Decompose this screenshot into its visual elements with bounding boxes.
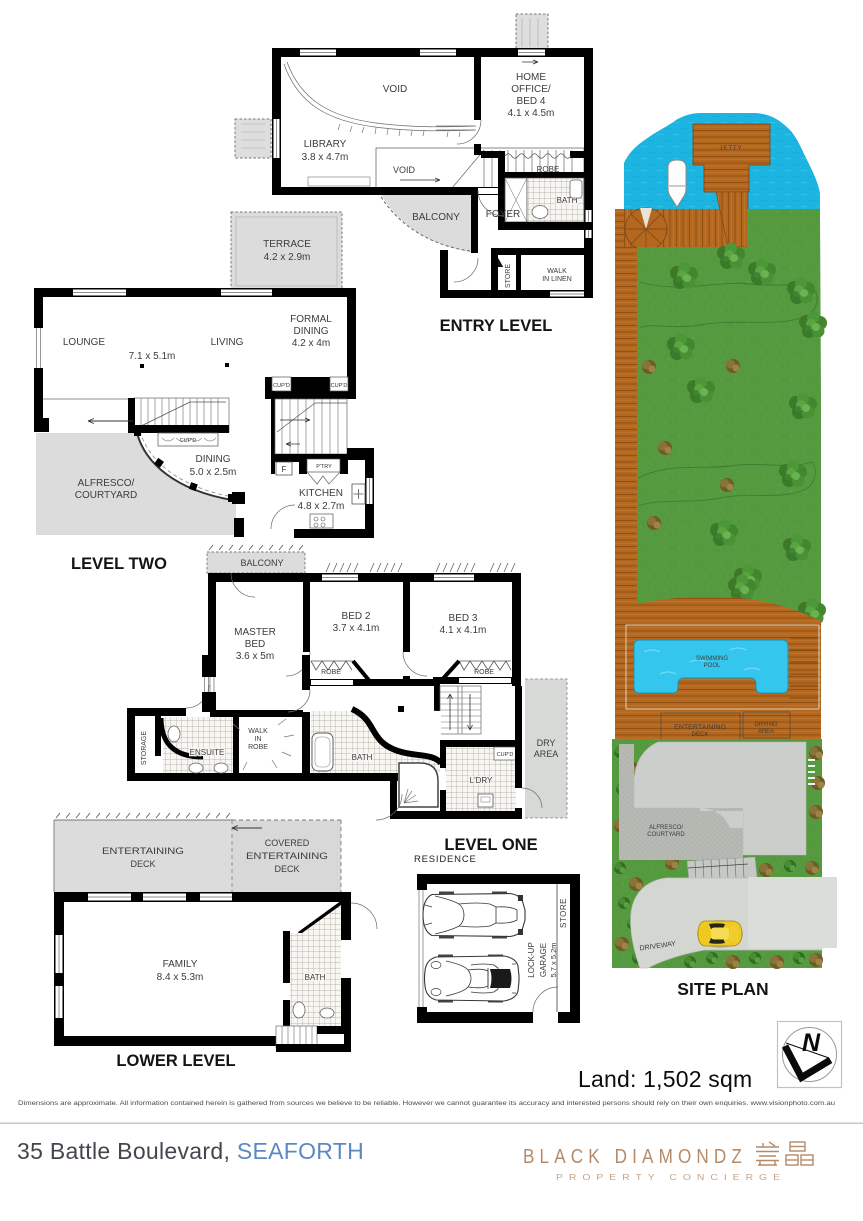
svg-text:FAMILY: FAMILY bbox=[163, 959, 198, 970]
svg-text:4.1 x 4.1m: 4.1 x 4.1m bbox=[440, 625, 487, 636]
svg-text:ENTERTAINING: ENTERTAINING bbox=[246, 851, 328, 861]
svg-text:JETTY: JETTY bbox=[719, 146, 742, 152]
svg-text:DINING: DINING bbox=[196, 454, 231, 465]
svg-text:P'TRY: P'TRY bbox=[316, 464, 332, 470]
svg-text:STORAGE: STORAGE bbox=[141, 731, 148, 765]
svg-text:CUP'D: CUP'D bbox=[273, 383, 290, 389]
svg-text:ENSUITE: ENSUITE bbox=[190, 748, 225, 757]
svg-text:LEVEL TWO: LEVEL TWO bbox=[71, 555, 167, 573]
svg-text:ROBE: ROBE bbox=[248, 744, 268, 751]
svg-text:FOYER: FOYER bbox=[486, 209, 520, 220]
svg-text:5.7 x 5.2m: 5.7 x 5.2m bbox=[549, 942, 558, 977]
svg-text:3.8 x 4.7m: 3.8 x 4.7m bbox=[302, 152, 349, 163]
svg-text:ENTERTAINING: ENTERTAINING bbox=[102, 846, 184, 856]
svg-text:SITE PLAN: SITE PLAN bbox=[677, 979, 768, 999]
svg-text:DECK: DECK bbox=[130, 859, 155, 869]
svg-text:5.0 x 2.5m: 5.0 x 2.5m bbox=[190, 467, 237, 478]
svg-text:WALK: WALK bbox=[248, 728, 268, 735]
svg-text:DRYING: DRYING bbox=[754, 722, 778, 728]
svg-text:MASTER: MASTER bbox=[234, 627, 276, 638]
svg-text:DRY: DRY bbox=[537, 738, 556, 748]
svg-text:ALFRESCO/: ALFRESCO/ bbox=[78, 478, 135, 489]
svg-text:L'DRY: L'DRY bbox=[470, 776, 493, 785]
svg-text:AREA: AREA bbox=[534, 749, 559, 759]
svg-text:BALCONY: BALCONY bbox=[240, 558, 283, 568]
svg-text:KITCHEN: KITCHEN bbox=[299, 488, 343, 499]
svg-text:BED 2: BED 2 bbox=[342, 611, 371, 622]
svg-text:ENTERTAINING: ENTERTAINING bbox=[674, 725, 726, 731]
svg-text:VOID: VOID bbox=[393, 165, 416, 175]
svg-text:SWIMMING: SWIMMING bbox=[696, 656, 728, 662]
svg-text:LEVEL ONE: LEVEL ONE bbox=[444, 836, 537, 854]
svg-text:DECK: DECK bbox=[274, 864, 299, 874]
svg-text:LOUNGE: LOUNGE bbox=[63, 337, 106, 348]
svg-text:FORMAL: FORMAL bbox=[290, 314, 332, 325]
svg-text:DINING: DINING bbox=[294, 326, 329, 337]
svg-text:4.8 x 2.7m: 4.8 x 2.7m bbox=[298, 501, 345, 512]
svg-text:RESIDENCE: RESIDENCE bbox=[414, 854, 477, 865]
svg-text:CUP'D: CUP'D bbox=[331, 383, 348, 389]
svg-text:DECK: DECK bbox=[692, 732, 709, 738]
svg-text:BALCONY: BALCONY bbox=[412, 212, 460, 223]
svg-text:LOCK-UP: LOCK-UP bbox=[527, 942, 536, 978]
svg-text:OFFICE/: OFFICE/ bbox=[511, 84, 551, 95]
svg-text:ROBE: ROBE bbox=[474, 669, 494, 676]
svg-text:IN LINEN: IN LINEN bbox=[542, 276, 572, 283]
svg-text:LIVING: LIVING bbox=[211, 337, 244, 348]
svg-text:BED: BED bbox=[245, 639, 266, 650]
svg-text:POOL: POOL bbox=[704, 663, 721, 669]
svg-text:BLACK DIAMONDZ: BLACK DIAMONDZ bbox=[523, 1146, 747, 1168]
svg-text:COURTYARD: COURTYARD bbox=[75, 490, 137, 501]
svg-text:STORE: STORE bbox=[559, 898, 568, 928]
svg-text:BATH: BATH bbox=[305, 973, 326, 982]
svg-text:8.4 x 5.3m: 8.4 x 5.3m bbox=[157, 972, 204, 983]
svg-text:CUP'D: CUP'D bbox=[497, 752, 514, 758]
svg-text:4.2 x 2.9m: 4.2 x 2.9m bbox=[264, 252, 311, 263]
svg-text:3.7 x 4.1m: 3.7 x 4.1m bbox=[333, 623, 380, 634]
svg-text:IN: IN bbox=[255, 736, 262, 743]
svg-text:WALK: WALK bbox=[547, 268, 567, 275]
svg-text:COURTYARD: COURTYARD bbox=[647, 832, 685, 838]
svg-text:COVERED: COVERED bbox=[265, 838, 310, 848]
svg-text:BATH: BATH bbox=[352, 753, 373, 762]
svg-text:VOID: VOID bbox=[383, 84, 407, 95]
svg-text:3.6 x 5m: 3.6 x 5m bbox=[236, 651, 274, 662]
svg-text:4.1 x 4.5m: 4.1 x 4.5m bbox=[508, 108, 555, 119]
svg-text:PROPERTY CONCIERGE: PROPERTY CONCIERGE bbox=[556, 1173, 786, 1182]
svg-text:35 Battle Boulevard, SEAFORTH: 35 Battle Boulevard, SEAFORTH bbox=[17, 1138, 364, 1164]
svg-text:N: N bbox=[802, 1029, 821, 1057]
svg-text:ROBE: ROBE bbox=[321, 669, 341, 676]
svg-text:AREA: AREA bbox=[758, 729, 774, 735]
svg-text:STORE: STORE bbox=[505, 264, 512, 288]
svg-text:HOME: HOME bbox=[516, 72, 546, 83]
svg-text:BED 4: BED 4 bbox=[517, 96, 546, 107]
svg-text:4.2 x 4m: 4.2 x 4m bbox=[292, 338, 330, 349]
svg-text:Dimensions are approximate. Al: Dimensions are approximate. All informat… bbox=[18, 1100, 835, 1107]
svg-text:7.1 x 5.1m: 7.1 x 5.1m bbox=[129, 351, 176, 362]
svg-text:LOWER LEVEL: LOWER LEVEL bbox=[116, 1052, 235, 1070]
svg-text:Land: 1,502 sqm: Land: 1,502 sqm bbox=[578, 1066, 752, 1092]
svg-text:GARAGE: GARAGE bbox=[539, 943, 548, 977]
svg-text:F: F bbox=[282, 465, 287, 474]
svg-text:ENTRY LEVEL: ENTRY LEVEL bbox=[440, 317, 553, 335]
svg-text:BED 3: BED 3 bbox=[449, 613, 478, 624]
svg-text:LIBRARY: LIBRARY bbox=[304, 139, 347, 150]
svg-text:ALFRESCO/: ALFRESCO/ bbox=[649, 825, 683, 831]
svg-text:TERRACE: TERRACE bbox=[263, 239, 311, 250]
